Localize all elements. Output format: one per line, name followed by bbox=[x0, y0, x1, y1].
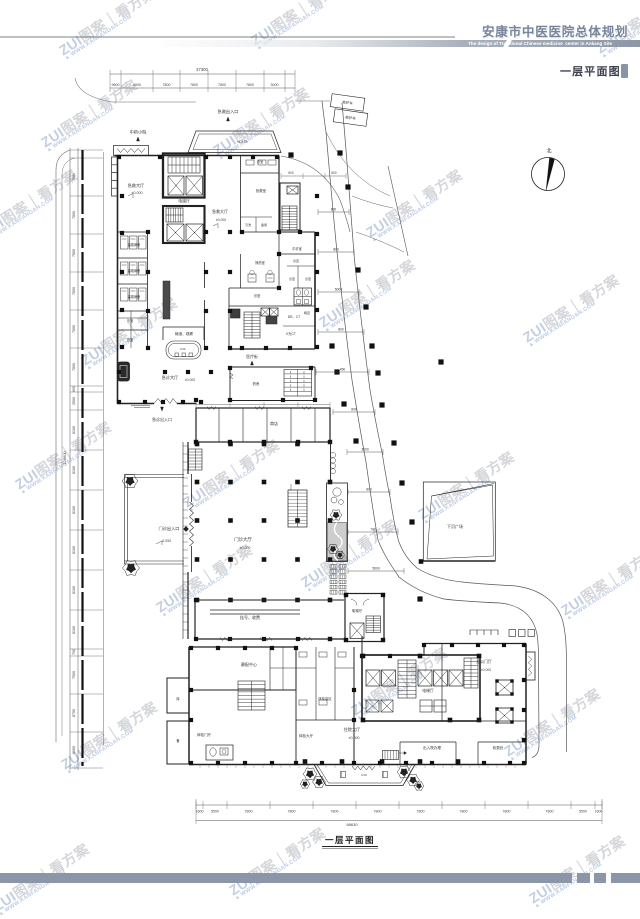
svg-text:体检大厅: 体检大厅 bbox=[299, 733, 314, 738]
svg-text:诊室: 诊室 bbox=[293, 258, 299, 263]
svg-text:库: 库 bbox=[176, 696, 180, 701]
svg-text:诊室: 诊室 bbox=[254, 293, 260, 298]
svg-text:800: 800 bbox=[333, 248, 339, 252]
svg-text:7800: 7800 bbox=[218, 83, 226, 87]
svg-text:收费处: 收费处 bbox=[493, 745, 504, 750]
svg-text:5000: 5000 bbox=[335, 288, 343, 292]
svg-text:800: 800 bbox=[331, 208, 337, 212]
svg-text:8100: 8100 bbox=[72, 466, 76, 474]
svg-text:诊室: 诊室 bbox=[257, 159, 263, 164]
svg-text:7500: 7500 bbox=[72, 671, 76, 679]
svg-text:住院大厅: 住院大厅 bbox=[344, 726, 361, 733]
svg-text:5600: 5600 bbox=[372, 567, 380, 571]
svg-text:+4.875: +4.875 bbox=[236, 140, 247, 144]
svg-text:5500: 5500 bbox=[211, 810, 219, 814]
svg-text:下沉广场: 下沉广场 bbox=[447, 523, 463, 529]
svg-text:8100: 8100 bbox=[72, 546, 76, 554]
svg-text:9600: 9600 bbox=[112, 83, 120, 87]
svg-text:急救大厅: 急救大厅 bbox=[128, 182, 145, 189]
svg-text:8100: 8100 bbox=[72, 426, 76, 434]
svg-text:-0.050: -0.050 bbox=[161, 539, 171, 543]
svg-text:700: 700 bbox=[370, 528, 376, 532]
svg-text:静配中心: 静配中心 bbox=[241, 661, 257, 667]
svg-text:3600: 3600 bbox=[361, 448, 369, 452]
svg-text:药房: 药房 bbox=[253, 381, 260, 386]
svg-text:800: 800 bbox=[338, 328, 344, 332]
svg-text:中药小院: 中药小院 bbox=[130, 129, 148, 136]
svg-text:7800: 7800 bbox=[288, 810, 296, 814]
svg-text:一层平面图: 一层平面图 bbox=[325, 835, 375, 845]
svg-text:备用: 备用 bbox=[261, 222, 267, 227]
svg-text:3000: 3000 bbox=[271, 83, 279, 87]
svg-text:128600: 128600 bbox=[62, 451, 67, 465]
svg-text:600: 600 bbox=[72, 386, 76, 392]
svg-text:800: 800 bbox=[366, 488, 372, 492]
svg-text:体检高区: 体检高区 bbox=[318, 696, 332, 701]
svg-text:7800: 7800 bbox=[72, 249, 76, 257]
svg-text:8100: 8100 bbox=[72, 586, 76, 594]
svg-text:37300: 37300 bbox=[196, 67, 208, 72]
svg-text:5500: 5500 bbox=[579, 810, 587, 814]
svg-text:诊室: 诊室 bbox=[305, 276, 311, 281]
svg-text:7800: 7800 bbox=[417, 810, 425, 814]
svg-text:医疗街: 医疗街 bbox=[246, 354, 258, 359]
svg-text:出入院办理: 出入院办理 bbox=[423, 745, 441, 750]
svg-text:8100: 8100 bbox=[72, 506, 76, 514]
svg-text:±0.000: ±0.000 bbox=[240, 546, 251, 550]
svg-text:留观病房: 留观病房 bbox=[128, 268, 141, 273]
svg-text:7800: 7800 bbox=[72, 363, 76, 371]
svg-text:9000: 9000 bbox=[133, 83, 141, 87]
svg-text:800: 800 bbox=[351, 408, 357, 412]
svg-text:急救大厅: 急救大厅 bbox=[212, 208, 228, 214]
svg-text:留观病房: 留观病房 bbox=[128, 242, 141, 247]
svg-text:800: 800 bbox=[288, 171, 294, 175]
svg-text:中手室: 中手室 bbox=[292, 246, 302, 251]
svg-text:门诊出入口: 门诊出入口 bbox=[159, 525, 180, 532]
svg-text:办公门厅: 办公门厅 bbox=[476, 659, 491, 664]
svg-text:7800: 7800 bbox=[246, 83, 254, 87]
svg-text:急救出入口: 急救出入口 bbox=[218, 108, 239, 115]
svg-text:电梯厅: 电梯厅 bbox=[352, 608, 363, 613]
svg-text:体检门厅: 体检门厅 bbox=[197, 732, 212, 737]
svg-text:450: 450 bbox=[340, 368, 346, 372]
svg-text:输液、观察: 输液、观察 bbox=[175, 331, 193, 336]
svg-text:7800: 7800 bbox=[72, 211, 76, 219]
svg-text:救护车: 救护车 bbox=[345, 114, 357, 120]
svg-text:9600: 9600 bbox=[72, 746, 76, 754]
svg-text:7600: 7600 bbox=[72, 173, 76, 181]
svg-text:急诊大厅: 急诊大厅 bbox=[162, 374, 179, 381]
svg-text:7800: 7800 bbox=[331, 810, 339, 814]
svg-text:商店: 商店 bbox=[270, 420, 278, 426]
svg-text:暗室: 暗室 bbox=[304, 310, 310, 315]
svg-text:挂号、收费: 挂号、收费 bbox=[240, 614, 260, 620]
svg-text:门诊大厅: 门诊大厅 bbox=[234, 536, 252, 543]
svg-text:6.00: 6.00 bbox=[361, 773, 367, 777]
svg-text:7800: 7800 bbox=[163, 83, 171, 87]
svg-text:8100: 8100 bbox=[72, 626, 76, 634]
svg-text:±0.000: ±0.000 bbox=[185, 378, 195, 382]
svg-text:7800: 7800 bbox=[190, 83, 198, 87]
svg-text:诊室: 诊室 bbox=[127, 318, 133, 323]
svg-text:±0.000: ±0.000 bbox=[216, 218, 226, 222]
svg-text:7800: 7800 bbox=[503, 810, 511, 814]
svg-text:68630: 68630 bbox=[346, 822, 358, 827]
svg-text:电梯厅: 电梯厅 bbox=[422, 688, 434, 693]
svg-text:7800: 7800 bbox=[546, 810, 554, 814]
svg-text:留观病房: 留观病房 bbox=[128, 294, 141, 299]
svg-text:8700: 8700 bbox=[72, 709, 76, 717]
svg-text:X光CT: X光CT bbox=[286, 331, 296, 336]
svg-text:DR、CT: DR、CT bbox=[288, 315, 300, 319]
svg-text:800: 800 bbox=[331, 171, 337, 175]
svg-text:换药室: 换药室 bbox=[255, 260, 265, 265]
svg-text:备: 备 bbox=[176, 738, 180, 743]
svg-text:±0.000: ±0.000 bbox=[481, 668, 491, 672]
svg-text:700: 700 bbox=[72, 649, 76, 655]
svg-text:P14: P14 bbox=[181, 347, 186, 351]
svg-text:±0.000: ±0.000 bbox=[349, 736, 360, 740]
svg-text:抢救室: 抢救室 bbox=[256, 188, 267, 193]
svg-text:7800: 7800 bbox=[460, 810, 468, 814]
svg-text:7800: 7800 bbox=[245, 810, 253, 814]
svg-text:1600: 1600 bbox=[196, 810, 204, 814]
svg-text:3500: 3500 bbox=[72, 397, 76, 405]
svg-text:7800: 7800 bbox=[374, 810, 382, 814]
svg-text:7600: 7600 bbox=[72, 325, 76, 333]
svg-text:诊室: 诊室 bbox=[289, 276, 295, 281]
svg-text:北: 北 bbox=[546, 148, 551, 155]
svg-text:电梯厅: 电梯厅 bbox=[178, 199, 190, 204]
svg-text:诊室: 诊室 bbox=[127, 337, 133, 342]
svg-text:污洗: 污洗 bbox=[245, 222, 251, 227]
svg-text:1600: 1600 bbox=[595, 810, 603, 814]
svg-text:7800: 7800 bbox=[72, 287, 76, 295]
svg-text:救护车: 救护车 bbox=[342, 99, 354, 105]
svg-text:急诊出入口: 急诊出入口 bbox=[152, 416, 172, 422]
